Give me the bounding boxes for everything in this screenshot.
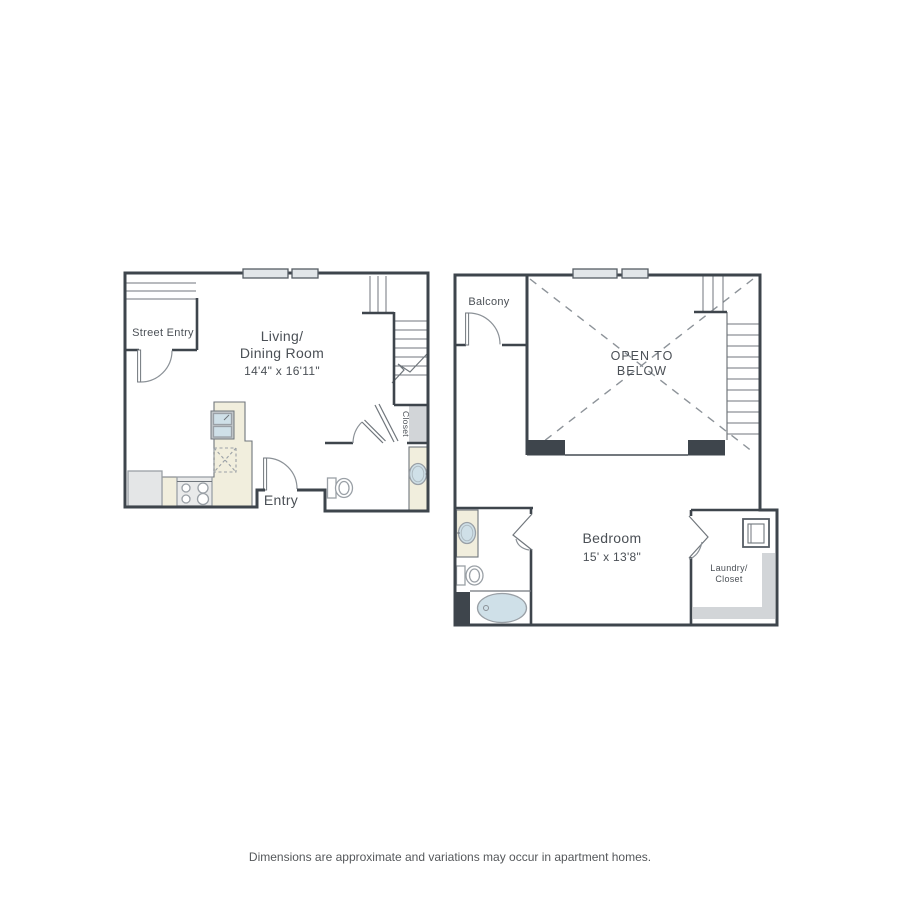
bathtub-icon: [478, 594, 527, 623]
washer-icon: [743, 519, 769, 547]
laundry-label-line2: Closet: [715, 574, 743, 584]
balcony-label: Balcony: [468, 296, 509, 308]
wall-block-right: [688, 440, 725, 456]
street-entry-steps: [126, 283, 196, 299]
street-entry-label: Street Entry: [132, 327, 194, 339]
living-room-label-line2: Dining Room: [240, 345, 324, 361]
bedroom-label: Bedroom: [583, 530, 642, 546]
refrigerator-icon: [128, 471, 162, 506]
balcony-door-leaf: [466, 313, 469, 345]
first-floor-plan: Street Entry Living/ Dining Room 14'4" x…: [125, 269, 429, 511]
stairs-floor2: [703, 276, 760, 440]
entry-door-arc: [267, 458, 297, 489]
bedroom-door: [513, 514, 532, 550]
toilet-icon-floor1: [328, 478, 353, 498]
window: [243, 269, 288, 278]
wall-block-left: [527, 440, 565, 456]
stairs-upper: [370, 276, 428, 383]
balcony-door-arc: [469, 313, 500, 344]
floorplan-page: Street Entry Living/ Dining Room 14'4" x…: [0, 0, 900, 900]
window: [573, 269, 617, 278]
wall-block-bath2: [455, 592, 470, 625]
closet-label: Closet: [401, 411, 411, 437]
disclaimer-text: Dimensions are approximate and variation…: [249, 850, 651, 864]
vestibule-door-leaf: [138, 350, 141, 382]
entry-label: Entry: [264, 492, 298, 508]
closet-angled-door: [375, 404, 398, 442]
floor1-outer-wall: [125, 273, 428, 511]
open-below-label-line1: OPEN TO: [611, 349, 674, 363]
kitchen-sink-icon: [211, 411, 234, 439]
toilet-icon-floor2: [457, 566, 484, 585]
stove-icon: [177, 477, 212, 506]
living-room-dimensions: 14'4" x 16'11": [244, 364, 320, 378]
floorplan-canvas: Street Entry Living/ Dining Room 14'4" x…: [0, 0, 900, 900]
laundry-label-line1: Laundry/: [710, 563, 748, 573]
stair-direction-line: [392, 354, 427, 383]
vestibule-door-arc: [141, 351, 172, 382]
window: [622, 269, 648, 278]
laundry-door: [689, 516, 708, 559]
living-room-label-line1: Living/: [261, 328, 304, 344]
bedroom-dimensions: 15' x 13'8": [583, 550, 641, 564]
bathroom-door: [353, 420, 386, 443]
window: [292, 269, 318, 278]
open-below-label-line2: BELOW: [617, 364, 667, 378]
entry-door-leaf: [264, 458, 267, 490]
second-floor-plan: Balcony OPEN TO BELOW Bedroom 15' x 13'8…: [455, 269, 777, 625]
